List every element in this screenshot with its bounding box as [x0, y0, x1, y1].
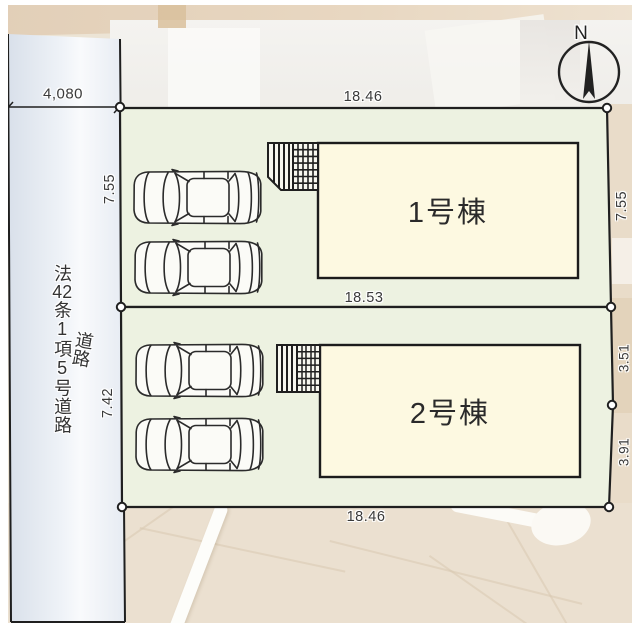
dim-plot1-right: 7.55	[614, 191, 630, 221]
north-compass	[559, 41, 619, 102]
entrance-porch-1	[268, 143, 318, 190]
car-icon	[134, 170, 261, 226]
car-icon	[136, 417, 263, 473]
compass-north-label: N	[574, 23, 588, 45]
dim-plot1-left: 7.55	[102, 174, 118, 204]
plan-drawing	[0, 0, 640, 640]
car-icon	[135, 240, 262, 296]
dim-plot2-right-lower: 3.91	[617, 438, 632, 466]
dim-plot1-bottom: 18.53	[345, 290, 384, 306]
dim-plot2-right-upper: 3.51	[617, 344, 632, 372]
site-plan-image: N 4,080 18.46 18.53 18.46 7.55 7.55 7.42…	[0, 0, 640, 640]
dim-plot2-left: 7.42	[100, 388, 116, 418]
entrance-porch-2	[277, 345, 320, 392]
car-icon	[136, 343, 263, 399]
building-1-label: 1号棟	[408, 189, 488, 231]
frame-left	[0, 0, 8, 640]
north-needle-icon	[583, 41, 595, 99]
dim-road-width: 4,080	[43, 86, 83, 103]
building-2-label: 2号棟	[410, 390, 490, 432]
frame-bottom	[0, 623, 640, 640]
dim-plot1-top: 18.46	[344, 89, 383, 105]
frame-top	[0, 0, 640, 5]
frame-right	[632, 0, 640, 640]
dim-plot2-bottom: 18.46	[347, 509, 386, 525]
